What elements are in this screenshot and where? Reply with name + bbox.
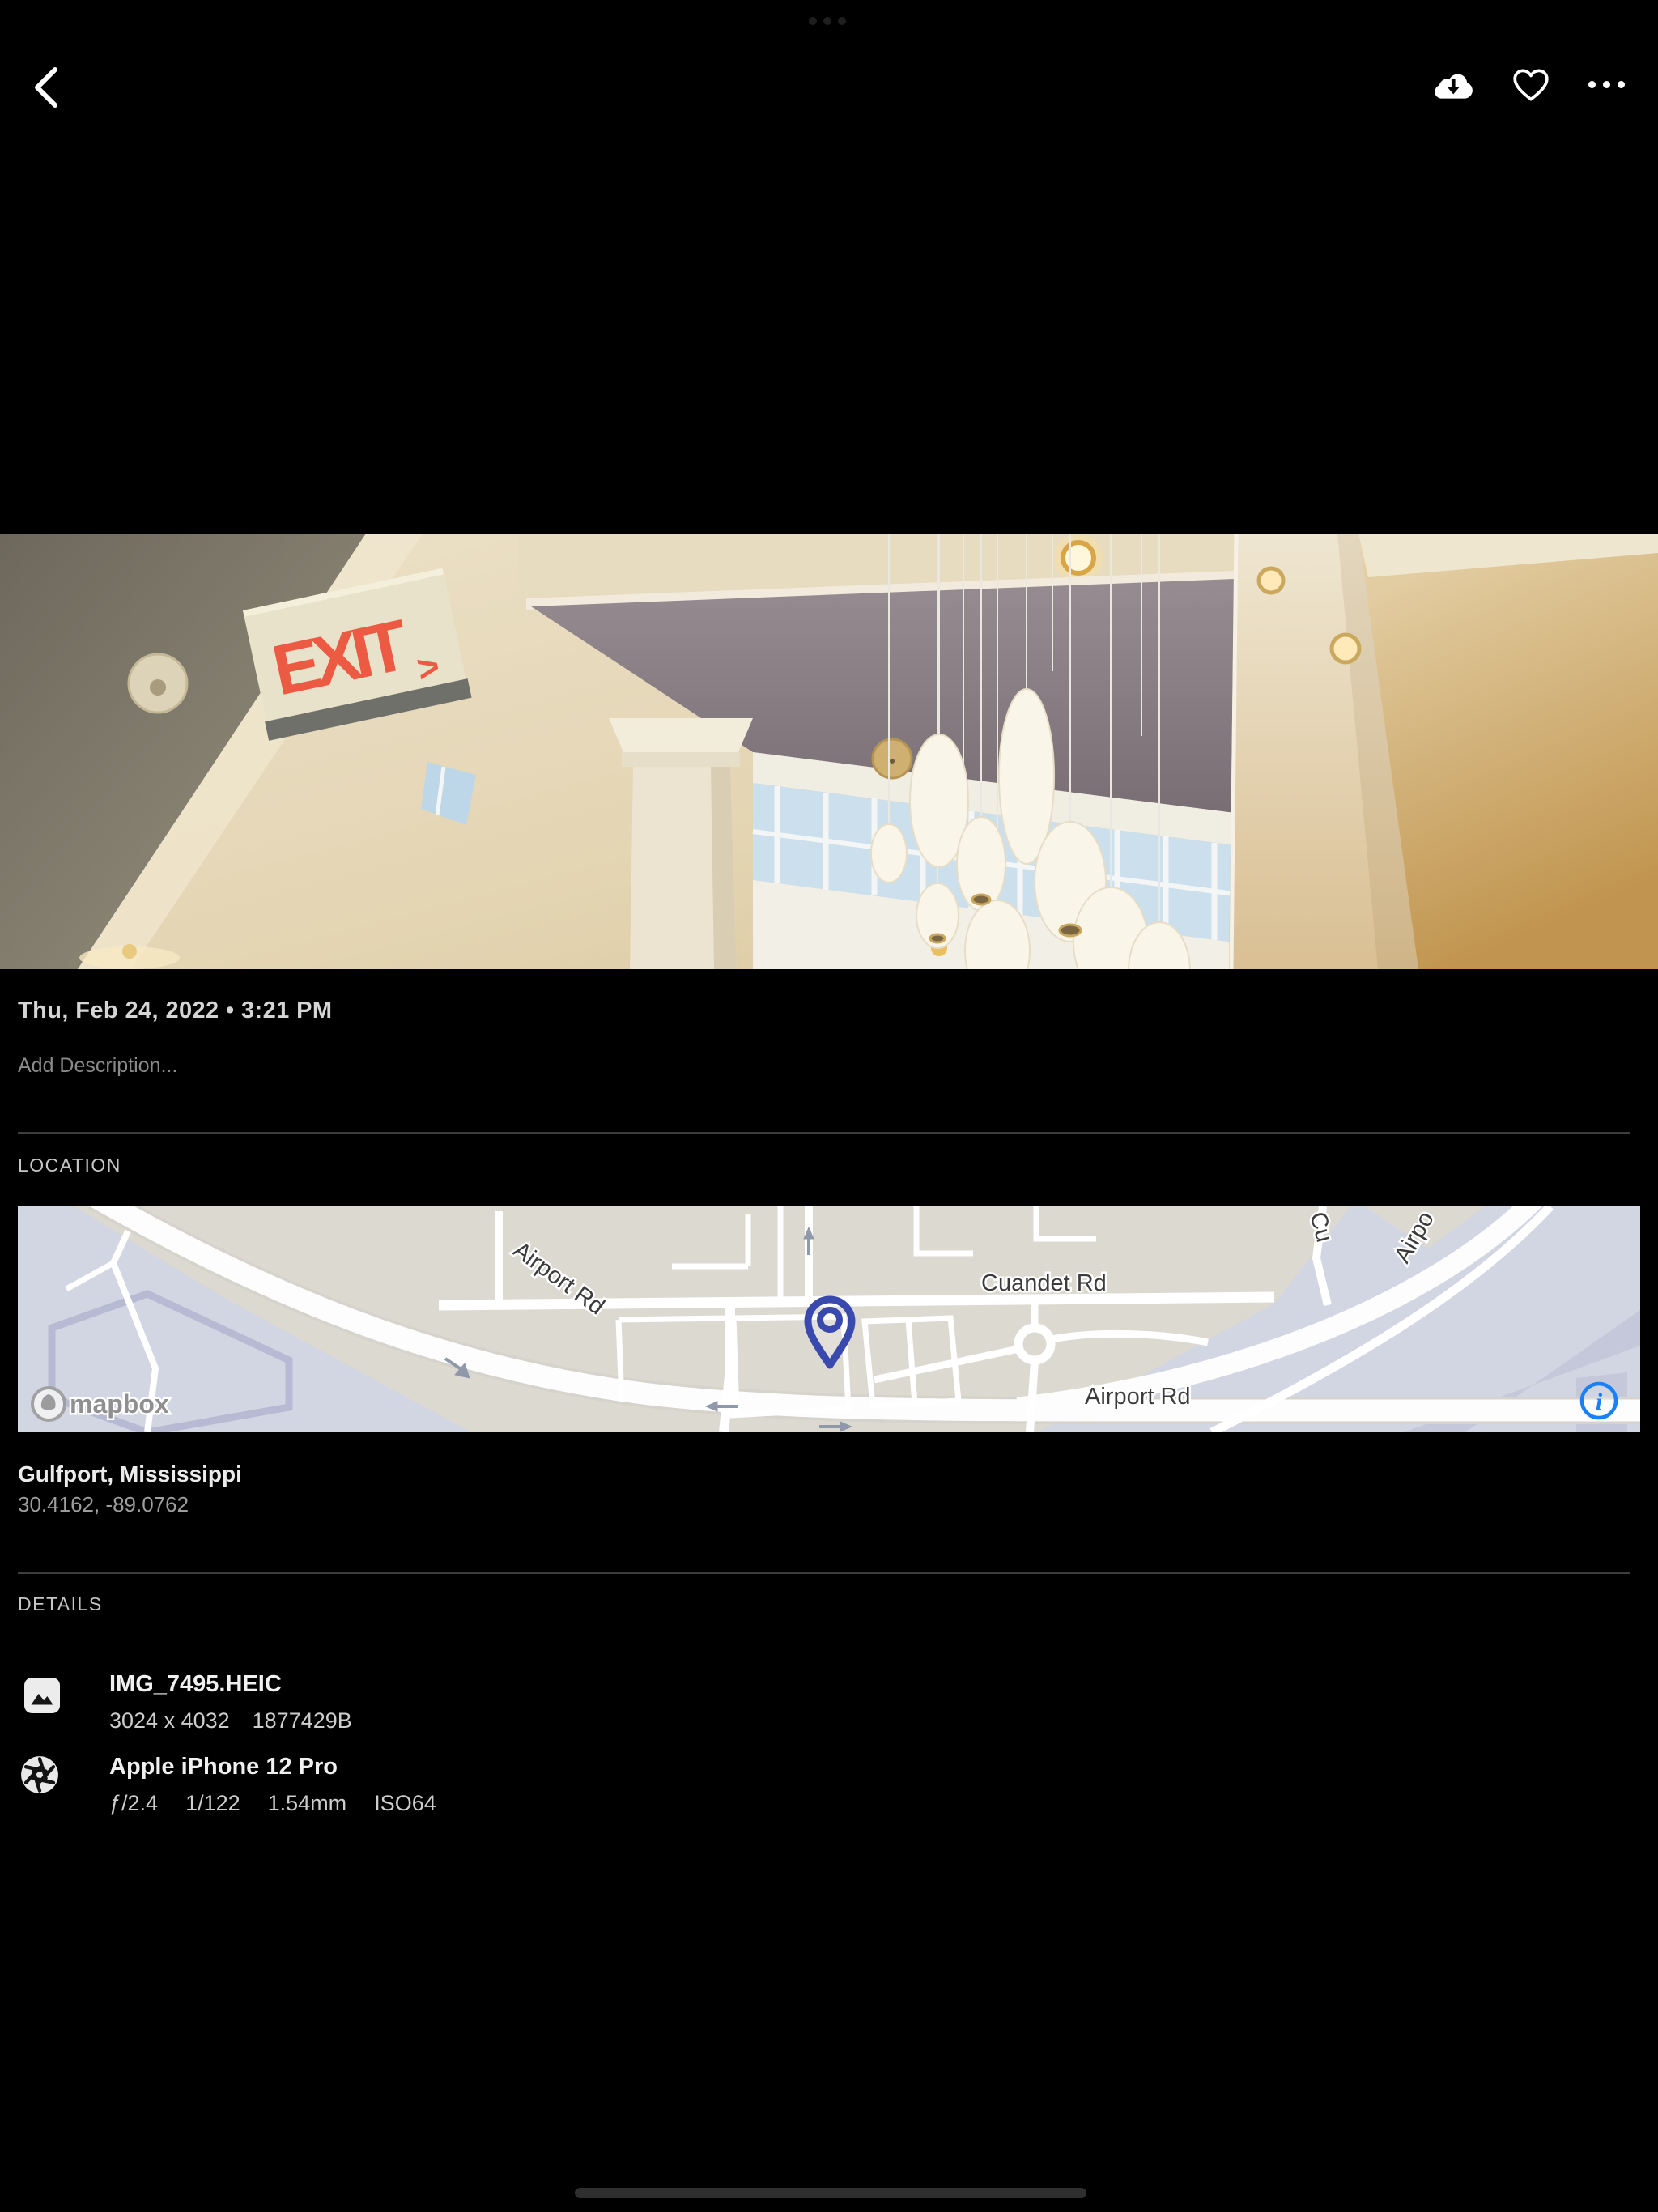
favorite-button[interactable] [1513,68,1549,102]
download-button[interactable] [1431,70,1475,102]
chevron-left-icon [31,65,63,110]
location-map[interactable]: Airport Rd Cuandet Rd Airport Rd Cu Airp… [18,1206,1640,1432]
description-input[interactable]: Add Description... [18,1054,177,1078]
divider [18,1132,1630,1134]
heart-icon [1513,68,1549,102]
file-dimensions: 3024 x 4032 [109,1708,230,1733]
photo-viewer[interactable]: EXIT > [0,534,1658,969]
app-switcher-dots-icon [809,17,846,25]
location-section-label: LOCATION [18,1155,121,1176]
map-roundabout [1018,1328,1051,1360]
more-options-button[interactable] [1588,81,1625,88]
info-icon: i [1596,1389,1603,1415]
details-section-label: DETAILS [18,1593,103,1615]
camera-name: Apple iPhone 12 Pro [109,1754,338,1780]
exif-aperture: ƒ/2.4 [109,1791,158,1816]
exif-shutter: 1/122 [185,1791,240,1816]
mapbox-wordmark: mapbox [70,1389,169,1419]
exif-iso: ISO64 [374,1791,436,1816]
file-size: 1877429B [253,1708,352,1733]
divider [18,1572,1630,1574]
home-indicator[interactable] [575,2188,1086,2198]
ellipsis-icon [1588,81,1625,88]
location-coordinates: 30.4162, -89.0762 [18,1492,189,1517]
back-button[interactable] [31,65,63,110]
exif-focal-length: 1.54mm [268,1791,347,1816]
map-label-airport-horizontal: Airport Rd [1085,1384,1191,1410]
file-name: IMG_7495.HEIC [109,1671,282,1698]
location-place: Gulfport, Mississippi [18,1461,242,1487]
recessed-light [1063,542,1094,573]
camera-aperture-icon [20,1755,59,1798]
map-label-cuandet: Cuandet Rd [981,1270,1107,1296]
mapbox-logo[interactable]: mapbox [32,1388,169,1420]
file-meta: 3024 x 4032 1877429B [109,1708,352,1733]
camera-exif: ƒ/2.4 1/122 1.54mm ISO64 [109,1791,436,1816]
map-info-button[interactable]: i [1582,1384,1616,1418]
capture-date: Thu, Feb 24, 2022 • 3:21 PM [18,998,332,1024]
cloud-download-icon [1431,70,1475,102]
photo-image: EXIT > [0,534,1658,969]
image-file-icon [24,1678,60,1717]
